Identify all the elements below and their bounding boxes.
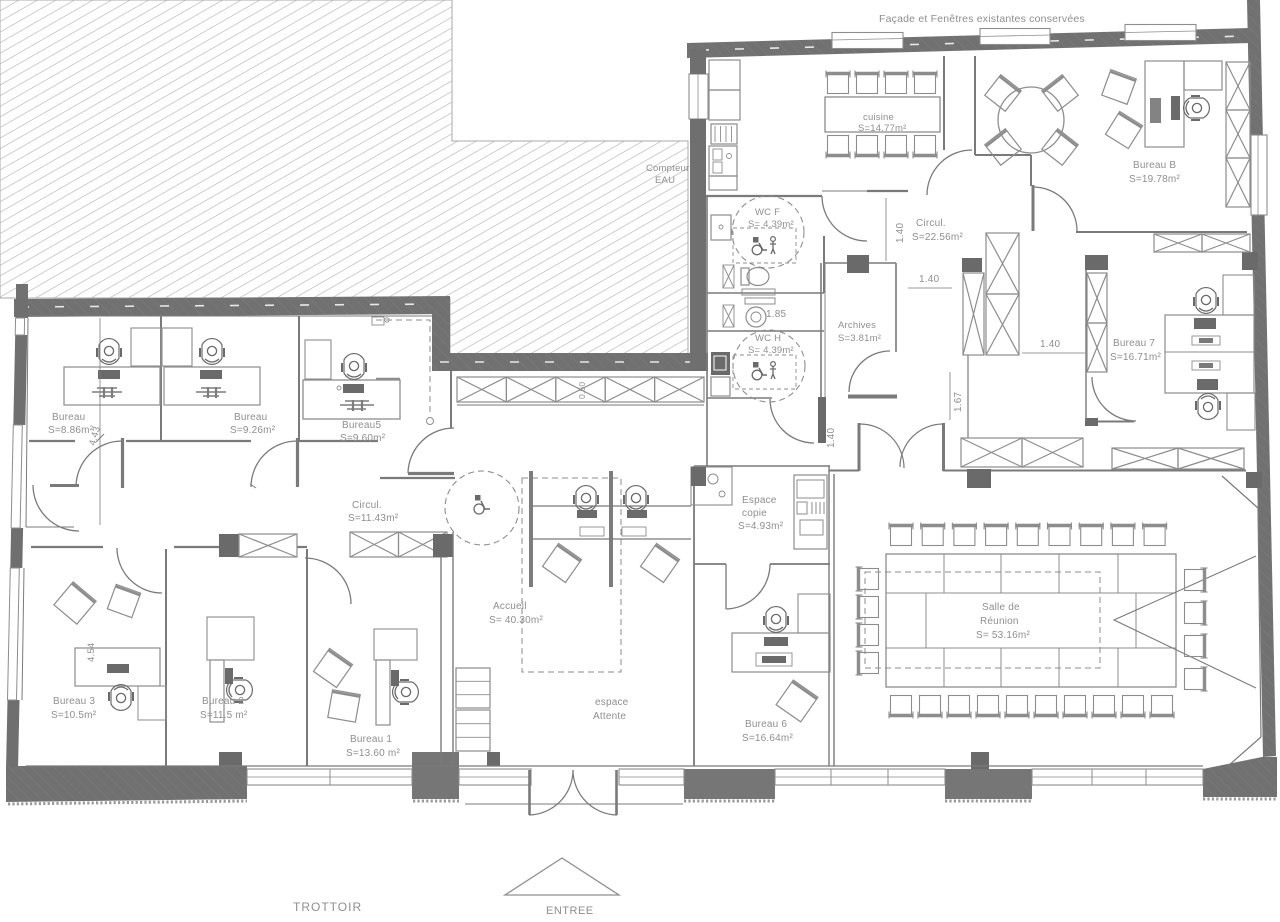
svg-text:S=4.93m²: S=4.93m² [738,521,784,532]
svg-text:Façade et Fenêtres existantes: Façade et Fenêtres existantes conservées [879,13,1085,25]
svg-text:1.40: 1.40 [1040,339,1061,350]
svg-text:S=14.77m²: S=14.77m² [858,123,907,134]
svg-text:cuisine: cuisine [863,112,894,123]
svg-text:WC H: WC H [755,333,781,344]
svg-text:4.54: 4.54 [86,643,97,662]
svg-text:Bureau B: Bureau B [1133,160,1176,171]
svg-text:1.85: 1.85 [766,309,787,320]
svg-text:Bureau 2: Bureau 2 [202,696,244,707]
svg-text:Circul.: Circul. [352,500,382,511]
svg-text:Réunion: Réunion [980,616,1019,627]
svg-text:Bureau: Bureau [52,412,85,423]
svg-text:Espace: Espace [742,495,777,506]
svg-text:0.60: 0.60 [577,382,587,399]
svg-text:Bureau: Bureau [234,412,267,423]
svg-text:S=11.43m²: S=11.43m² [348,513,399,524]
svg-text:S=10.5m²: S=10.5m² [51,710,97,721]
svg-text:Attente: Attente [593,711,626,722]
svg-text:S= 4.39m²: S= 4.39m² [748,345,794,356]
svg-text:Bureau 7: Bureau 7 [1113,338,1155,349]
svg-text:Circul.: Circul. [916,218,946,229]
svg-text:S=8.86m²: S=8.86m² [48,425,94,436]
svg-text:Archives: Archives [838,320,876,331]
svg-text:S=11.5 m²: S=11.5 m² [200,710,248,721]
svg-text:EAU: EAU [655,175,675,186]
svg-text:1.40: 1.40 [826,427,837,448]
svg-text:S=16.71m²: S=16.71m² [1110,352,1161,363]
svg-text:S=3.81m²: S=3.81m² [838,333,881,344]
svg-text:1.67: 1.67 [953,391,964,412]
svg-text:S= 40.30m²: S= 40.30m² [489,615,543,626]
svg-text:S=9.26m²: S=9.26m² [230,425,276,436]
svg-text:Bureau 6: Bureau 6 [745,719,787,730]
svg-text:1.40: 1.40 [895,222,906,243]
svg-text:S=22.56m²: S=22.56m² [912,232,963,243]
svg-text:ENTREE: ENTREE [546,905,594,917]
svg-text:Accueil: Accueil [493,601,527,612]
svg-text:Salle de: Salle de [982,602,1020,613]
svg-text:S=16.64m²: S=16.64m² [742,733,793,744]
svg-text:S=13.60 m²: S=13.60 m² [346,748,400,759]
svg-text:WC F: WC F [755,207,780,218]
svg-text:Bureau 1: Bureau 1 [350,734,392,745]
svg-text:Compteur: Compteur [646,163,689,174]
svg-text:Bureau5: Bureau5 [342,420,381,431]
svg-text:S=9.60m²: S=9.60m² [340,433,386,444]
svg-text:S= 53.16m²: S= 53.16m² [976,630,1030,641]
svg-text:TROTTOIR: TROTTOIR [293,900,362,914]
svg-text:copie: copie [742,508,767,519]
svg-text:1.40: 1.40 [919,274,940,285]
svg-text:Bureau 3: Bureau 3 [53,696,95,707]
svg-text:espace: espace [595,697,629,708]
svg-text:S=19.78m²: S=19.78m² [1129,174,1180,185]
